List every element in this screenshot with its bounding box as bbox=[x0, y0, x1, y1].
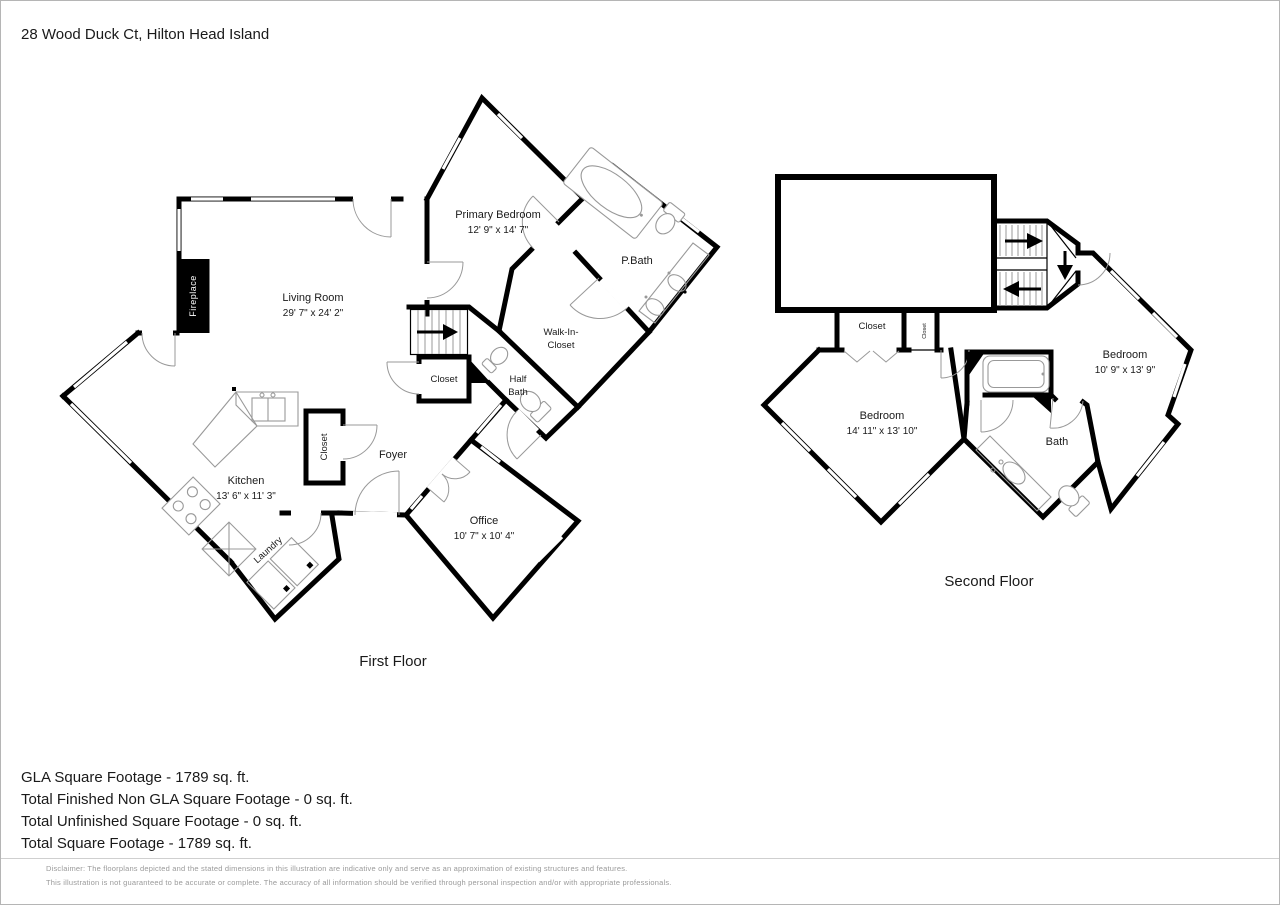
bath-vanity bbox=[976, 436, 1051, 511]
bedroom-left-label: Bedroom bbox=[860, 410, 905, 422]
first-floor-openings bbox=[142, 199, 627, 515]
floorplan-page: 28 Wood Duck Ct, Hilton Head Island bbox=[0, 0, 1280, 905]
first-floor-stairs bbox=[411, 310, 468, 355]
stairs-left-arrowhead-icon bbox=[1003, 281, 1019, 297]
second-floor-door-swings bbox=[844, 253, 1110, 432]
living-room-dims: 29' 7" x 24' 2" bbox=[283, 308, 344, 319]
total-square-footage: Total Square Footage - 1789 sq. ft. bbox=[21, 835, 252, 852]
foyer-label: Foyer bbox=[379, 449, 407, 461]
second-floor-wedges bbox=[967, 352, 1051, 413]
primary-bedroom-label: Primary Bedroom bbox=[455, 209, 541, 221]
second-floor-plan: Closet Closet Bedroom 14' 11" x 13' 10" … bbox=[764, 177, 1191, 590]
office-dims: 10' 7" x 10' 4" bbox=[454, 531, 515, 542]
closet-large-label: Closet bbox=[859, 321, 886, 332]
fireplace-label: Fireplace bbox=[188, 275, 198, 317]
walk-in-closet-label-1: Walk-In- bbox=[543, 327, 578, 338]
stairs-up-arrowhead-icon bbox=[1027, 233, 1043, 249]
bedroom-left-dims: 14' 11" x 13' 10" bbox=[847, 426, 918, 437]
primary-bath-tub-icon bbox=[563, 147, 664, 240]
first-floor-caption: First Floor bbox=[359, 653, 427, 670]
hall-closet-label: Closet bbox=[431, 374, 458, 385]
fireplace: Fireplace bbox=[177, 259, 210, 333]
kitchen-counter bbox=[193, 387, 298, 467]
half-bath-label-1: Half bbox=[510, 374, 527, 385]
closet-small-label: Closet bbox=[922, 323, 928, 339]
walk-in-closet-label-2: Closet bbox=[548, 340, 575, 351]
kitchen-stove-icon bbox=[162, 477, 220, 535]
kitchen-dishwasher-icon bbox=[202, 522, 256, 576]
second-floor-labels: Closet Closet Bedroom 14' 11" x 13' 10" … bbox=[847, 321, 1156, 448]
kitchen-label: Kitchen bbox=[228, 475, 265, 487]
first-floor-door-swings bbox=[142, 196, 627, 545]
unfinished-square-footage: Total Unfinished Square Footage - 0 sq. … bbox=[21, 813, 302, 830]
bath-label: Bath bbox=[1046, 436, 1069, 448]
living-room-label: Living Room bbox=[282, 292, 343, 304]
primary-bedroom-dims: 12' 9" x 14' 7" bbox=[468, 225, 529, 236]
bath-tub-icon bbox=[983, 356, 1049, 392]
kitchen-closet-label: Closet bbox=[319, 433, 330, 460]
kitchen-dims: 13' 6" x 11' 3" bbox=[216, 491, 276, 502]
second-floor-caption: Second Floor bbox=[944, 573, 1033, 590]
pbath-label: P.Bath bbox=[621, 255, 653, 267]
first-floor-plan: Fireplace bbox=[63, 98, 717, 670]
non-gla-square-footage: Total Finished Non GLA Square Footage - … bbox=[21, 791, 353, 808]
bedroom-right-label: Bedroom bbox=[1103, 349, 1148, 361]
half-bath-sink-icon bbox=[481, 344, 511, 374]
gla-square-footage: GLA Square Footage - 1789 sq. ft. bbox=[21, 769, 249, 786]
bedroom-right-dims: 10' 9" x 13' 9" bbox=[1095, 365, 1156, 376]
disclaimer-line-2: This illustration is not guaranteed to b… bbox=[46, 878, 672, 887]
stairs-up-arrowhead-icon bbox=[443, 324, 458, 340]
office-label: Office bbox=[470, 515, 499, 527]
half-bath-label-2: Bath bbox=[508, 387, 528, 398]
footer-divider bbox=[1, 858, 1279, 859]
disclaimer-line-1: Disclaimer: The floorplans depicted and … bbox=[46, 864, 627, 873]
